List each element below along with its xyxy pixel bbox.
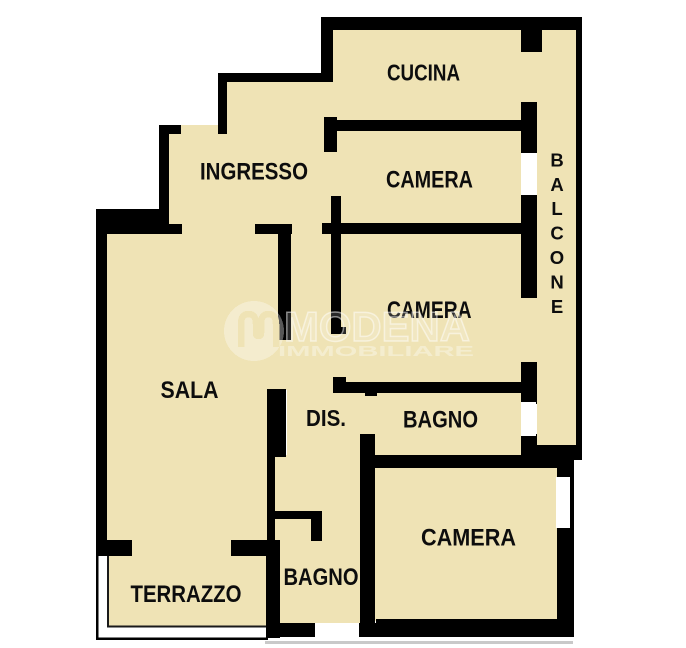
svg-text:BALCONE: BALCONE bbox=[550, 149, 564, 316]
svg-text:DIS.: DIS. bbox=[306, 405, 346, 431]
svg-text:BAGNO: BAGNO bbox=[284, 564, 359, 591]
svg-text:INGRESSO: INGRESSO bbox=[200, 159, 308, 186]
svg-text:BAGNO: BAGNO bbox=[403, 407, 478, 434]
svg-text:IMMOBILIARE: IMMOBILIARE bbox=[278, 343, 474, 360]
svg-text:TERRAZZO: TERRAZZO bbox=[131, 581, 242, 608]
svg-text:CUCINA: CUCINA bbox=[387, 60, 460, 86]
svg-text:SALA: SALA bbox=[161, 377, 219, 404]
svg-text:CAMERA: CAMERA bbox=[421, 525, 516, 552]
svg-text:CAMERA: CAMERA bbox=[386, 167, 473, 194]
